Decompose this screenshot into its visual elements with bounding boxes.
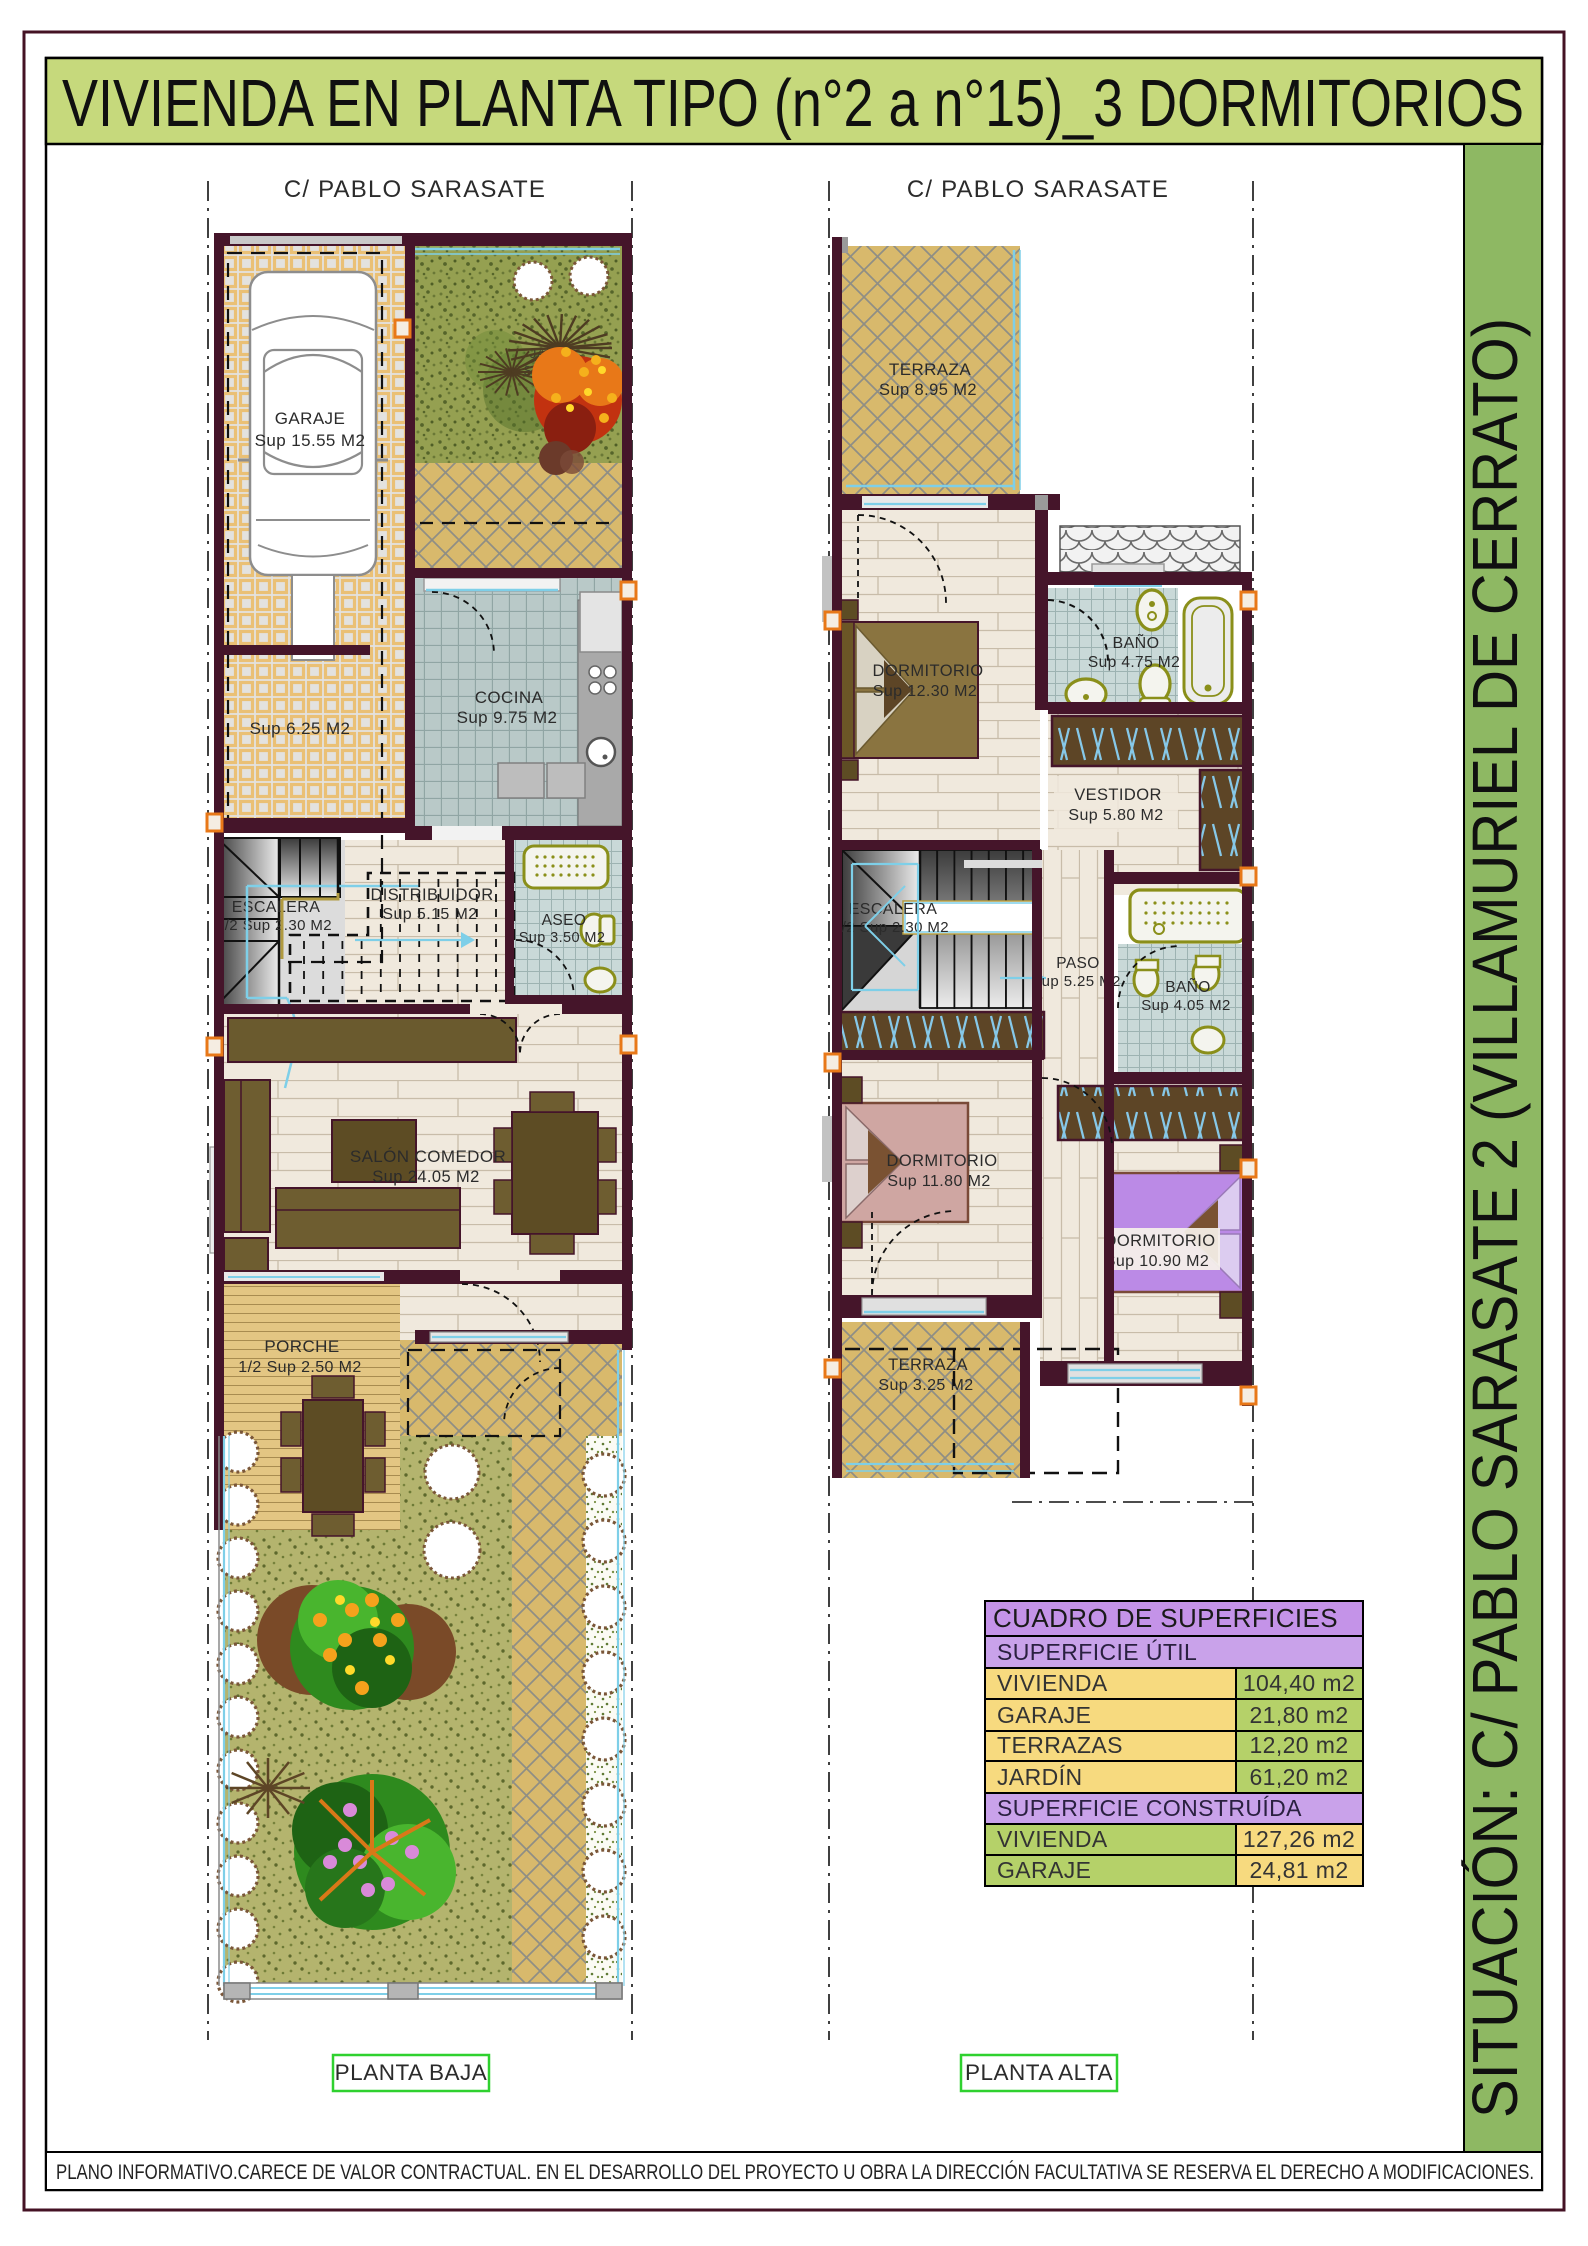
svg-text:GARAJE: GARAJE [997, 1702, 1091, 1728]
svg-text:TERRAZA: TERRAZA [889, 360, 971, 379]
svg-text:DISTRIBUIDOR: DISTRIBUIDOR [370, 886, 493, 904]
svg-text:Sup 4.75 M2: Sup 4.75 M2 [1088, 654, 1180, 671]
svg-text:COCINA: COCINA [475, 688, 544, 707]
svg-text:BAÑO: BAÑO [1113, 632, 1160, 652]
svg-text:TERRAZA: TERRAZA [888, 1356, 968, 1374]
svg-text:1/2 Sup 2.30 M2: 1/2 Sup 2.30 M2 [216, 917, 332, 934]
svg-text:104,40 m2: 104,40 m2 [1243, 1670, 1355, 1696]
svg-text:Sup 12.30 M2: Sup 12.30 M2 [873, 683, 977, 700]
svg-text:Sup 15.55 M2: Sup 15.55 M2 [255, 431, 366, 450]
svg-text:Sup 5.15 M2: Sup 5.15 M2 [382, 906, 477, 923]
svg-text:61,20 m2: 61,20 m2 [1249, 1764, 1348, 1790]
svg-text:CUADRO DE SUPERFICIES: CUADRO DE SUPERFICIES [993, 1603, 1338, 1633]
svg-text:SUPERFICIE ÚTIL: SUPERFICIE ÚTIL [997, 1639, 1197, 1665]
svg-text:PLANO INFORMATIVO.CARECE DE VA: PLANO INFORMATIVO.CARECE DE VALOR CONTRA… [56, 2161, 1534, 2184]
svg-text:Sup 10.90 M2: Sup 10.90 M2 [1105, 1253, 1209, 1270]
svg-text:GARAJE: GARAJE [275, 409, 345, 428]
svg-text:127,26 m2: 127,26 m2 [1243, 1826, 1355, 1852]
svg-text:ASEO: ASEO [542, 912, 587, 929]
svg-text:BAÑO: BAÑO [1165, 979, 1211, 996]
svg-text:DORMITORIO: DORMITORIO [873, 662, 984, 680]
svg-text:C/ PABLO SARASATE: C/ PABLO SARASATE [907, 176, 1169, 203]
svg-text:12,20 m2: 12,20 m2 [1249, 1732, 1348, 1758]
svg-text:TERRAZAS: TERRAZAS [997, 1732, 1123, 1758]
svg-text:24,81 m2: 24,81 m2 [1249, 1857, 1348, 1883]
svg-text:Sup 8.95 M2: Sup 8.95 M2 [879, 381, 977, 399]
svg-text:VESTIDOR: VESTIDOR [1074, 786, 1162, 804]
svg-text:1/2 Sup 2.50 M2: 1/2 Sup 2.50 M2 [238, 1359, 361, 1376]
svg-text:SALÓN COMEDOR: SALÓN COMEDOR [350, 1147, 506, 1166]
svg-text:21,80 m2: 21,80 m2 [1249, 1702, 1348, 1728]
svg-text:PLANTA ALTA: PLANTA ALTA [965, 2060, 1113, 2085]
svg-text:ESCALERA: ESCALERA [232, 899, 321, 916]
svg-text:VIVIENDA EN PLANTA TIPO (n°2 a: VIVIENDA EN PLANTA TIPO (n°2 a n°15)_3 D… [62, 66, 1524, 141]
svg-text:Sup 9.75 M2: Sup 9.75 M2 [457, 708, 558, 727]
svg-text:PLANTA BAJA: PLANTA BAJA [335, 2060, 488, 2085]
svg-text:Sup 5.80 M2: Sup 5.80 M2 [1068, 807, 1163, 824]
svg-text:GARAJE: GARAJE [997, 1857, 1091, 1883]
svg-text:SITUACIÓN: C/ PABLO SARASATE 2: SITUACIÓN: C/ PABLO SARASATE 2 (VILLAMUR… [1459, 318, 1531, 2118]
svg-text:1/2 Sup 2.30 M2: 1/2 Sup 2.30 M2 [833, 919, 949, 936]
svg-text:Sup 11.80 M2: Sup 11.80 M2 [887, 1173, 990, 1190]
svg-text:Sup 24.05 M2: Sup 24.05 M2 [372, 1168, 480, 1186]
svg-text:PORCHE: PORCHE [264, 1337, 339, 1356]
svg-text:C/ PABLO SARASATE: C/ PABLO SARASATE [284, 176, 546, 203]
svg-text:SUPERFICIE CONSTRUÍDA: SUPERFICIE CONSTRUÍDA [997, 1795, 1302, 1821]
svg-text:DORMITORIO: DORMITORIO [887, 1152, 998, 1170]
svg-text:JARDÍN: JARDÍN [997, 1764, 1082, 1790]
svg-text:PASO: PASO [1056, 955, 1100, 972]
svg-text:Sup 4.05 M2: Sup 4.05 M2 [1141, 997, 1230, 1014]
svg-text:DORMITORIO: DORMITORIO [1105, 1232, 1216, 1250]
svg-text:VIVIENDA: VIVIENDA [997, 1670, 1108, 1696]
svg-text:VIVIENDA: VIVIENDA [997, 1826, 1108, 1852]
svg-text:Sup 3.50 M2: Sup 3.50 M2 [519, 930, 606, 946]
svg-text:Sup 6.25 M2: Sup 6.25 M2 [250, 719, 351, 738]
svg-text:ESCALERA: ESCALERA [849, 901, 938, 918]
svg-text:Sup 3.25 M2: Sup 3.25 M2 [878, 1377, 973, 1394]
